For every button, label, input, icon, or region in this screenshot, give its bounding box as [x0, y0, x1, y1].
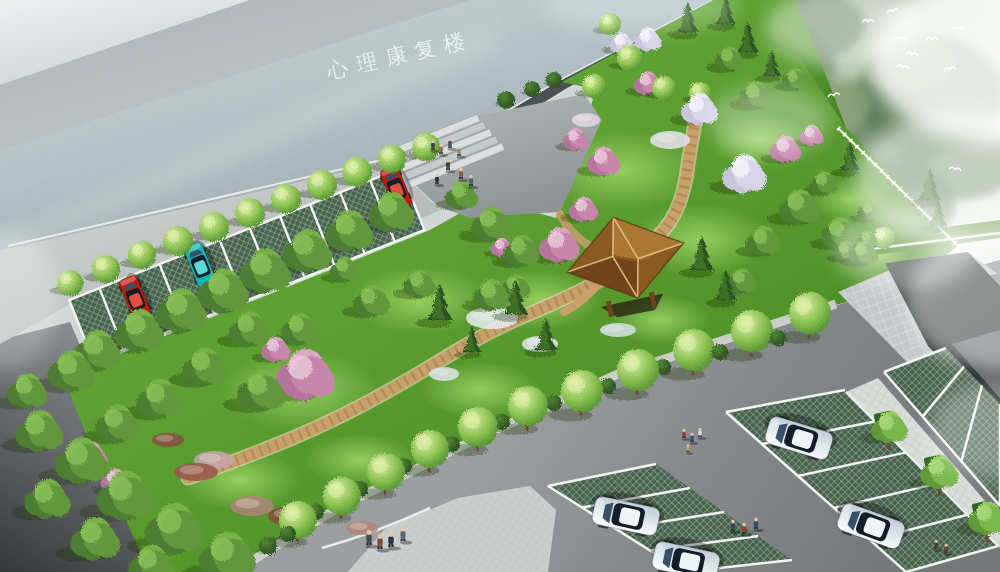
landscape-rendering-canvas: 心理康复楼: [0, 0, 1000, 572]
landscape-rendering: 心理康复楼: [0, 0, 1000, 572]
